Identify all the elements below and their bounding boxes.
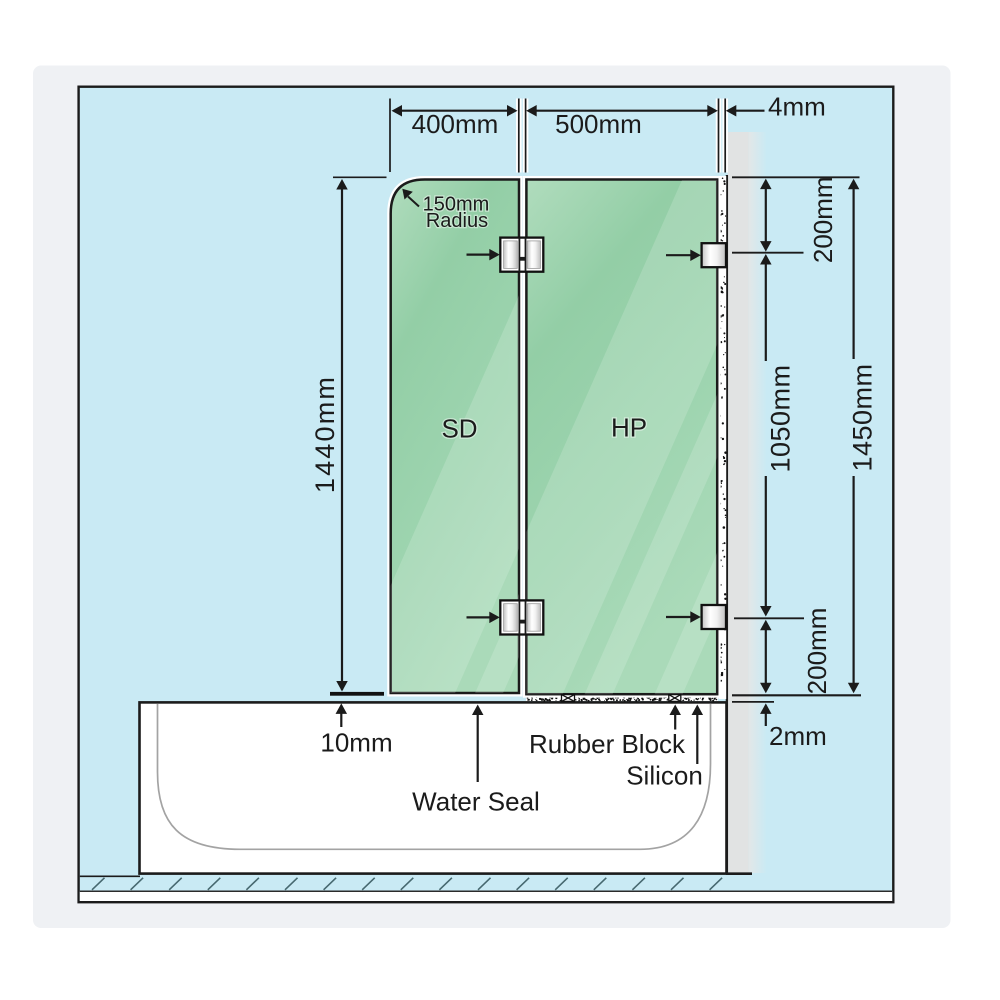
svg-text:400mm: 400mm	[412, 109, 499, 139]
svg-text:10mm: 10mm	[320, 728, 392, 758]
svg-text:500mm: 500mm	[555, 109, 642, 139]
svg-text:HP: HP	[611, 413, 647, 443]
svg-text:4mm: 4mm	[768, 92, 826, 122]
svg-text:Radius: Radius	[426, 210, 488, 232]
svg-text:1050mm: 1050mm	[766, 364, 796, 472]
svg-text:1440mm: 1440mm	[310, 375, 340, 493]
svg-text:Water Seal: Water Seal	[412, 787, 540, 817]
svg-text:1450mm: 1450mm	[847, 363, 877, 471]
svg-text:200mm: 200mm	[802, 608, 832, 695]
svg-text:SD: SD	[441, 414, 477, 444]
svg-text:Silicon: Silicon	[626, 761, 703, 791]
svg-text:Rubber Block: Rubber Block	[529, 729, 686, 759]
svg-text:200mm: 200mm	[808, 176, 838, 263]
svg-text:2mm: 2mm	[769, 721, 827, 751]
